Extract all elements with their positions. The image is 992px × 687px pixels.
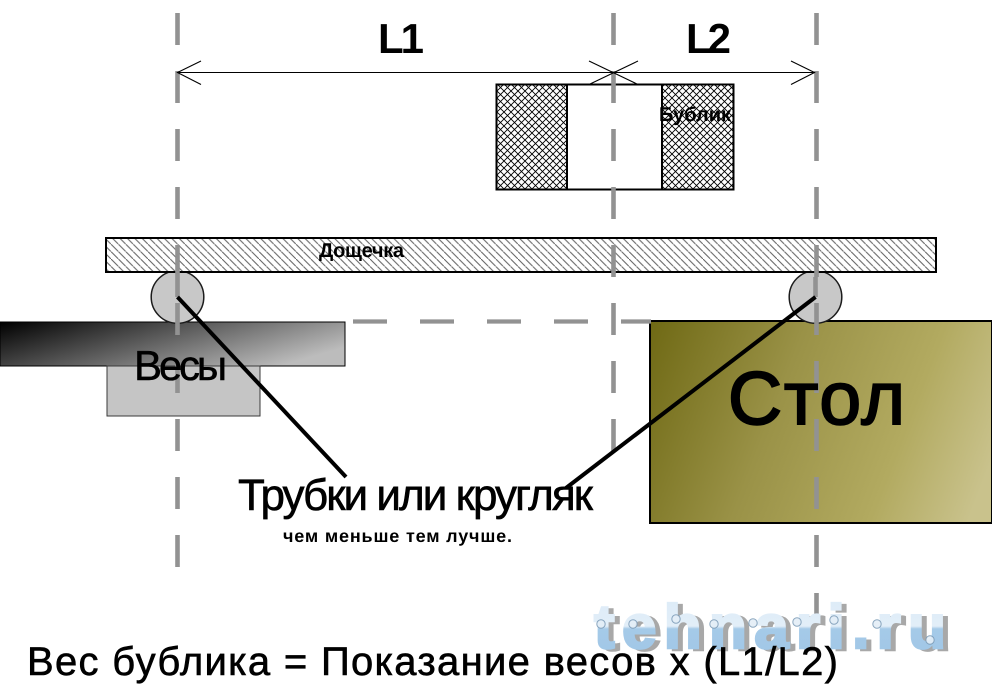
svg-text:чем меньше тем лучше.: чем меньше тем лучше.	[283, 526, 512, 546]
svg-text:Стол: Стол	[728, 356, 905, 440]
svg-text:Вес бублика = Показание весов: Вес бублика = Показание весов x (L1/L2)	[27, 640, 838, 684]
svg-text:Бублик: Бублик	[659, 104, 732, 126]
svg-text:L1: L1	[378, 15, 424, 62]
svg-text:L2: L2	[686, 15, 731, 62]
svg-text:Весы: Весы	[134, 342, 227, 389]
svg-text:Трубки или кругляк: Трубки или кругляк	[238, 471, 594, 520]
svg-text:Дощечка: Дощечка	[319, 240, 405, 262]
